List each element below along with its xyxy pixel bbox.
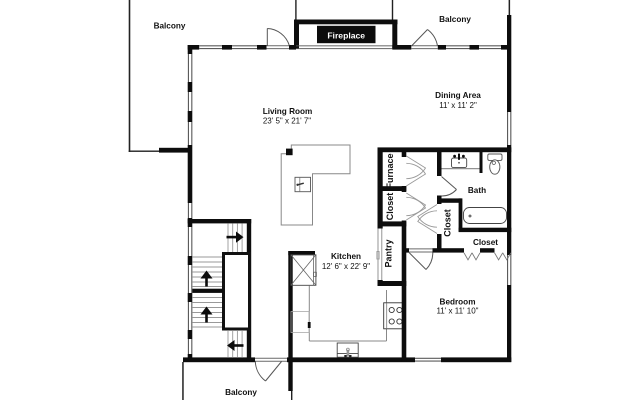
- svg-text:11' x 11' 10": 11' x 11' 10": [436, 307, 478, 316]
- svg-text:Bath: Bath: [468, 186, 486, 195]
- svg-text:Living Room: Living Room: [263, 107, 313, 116]
- svg-text:Kitchen: Kitchen: [331, 252, 361, 261]
- svg-text:Bedroom: Bedroom: [440, 298, 476, 307]
- svg-text:Furnace: Furnace: [385, 153, 395, 188]
- svg-text:11' x 11' 2": 11' x 11' 2": [439, 101, 477, 110]
- svg-text:Closet: Closet: [443, 209, 453, 237]
- svg-text:Balcony: Balcony: [439, 15, 471, 24]
- svg-text:Closet: Closet: [385, 193, 395, 221]
- svg-text:Dining Area: Dining Area: [435, 91, 481, 100]
- svg-text:Balcony: Balcony: [225, 388, 257, 397]
- svg-text:Pantry: Pantry: [384, 239, 394, 267]
- svg-text:23' 5" x 21' 7": 23' 5" x 21' 7": [263, 117, 311, 126]
- svg-text:Balcony: Balcony: [154, 22, 186, 31]
- svg-text:Closet: Closet: [473, 238, 498, 247]
- svg-text:Fireplace: Fireplace: [327, 31, 365, 41]
- svg-text:12' 6" x 22' 9": 12' 6" x 22' 9": [322, 262, 370, 271]
